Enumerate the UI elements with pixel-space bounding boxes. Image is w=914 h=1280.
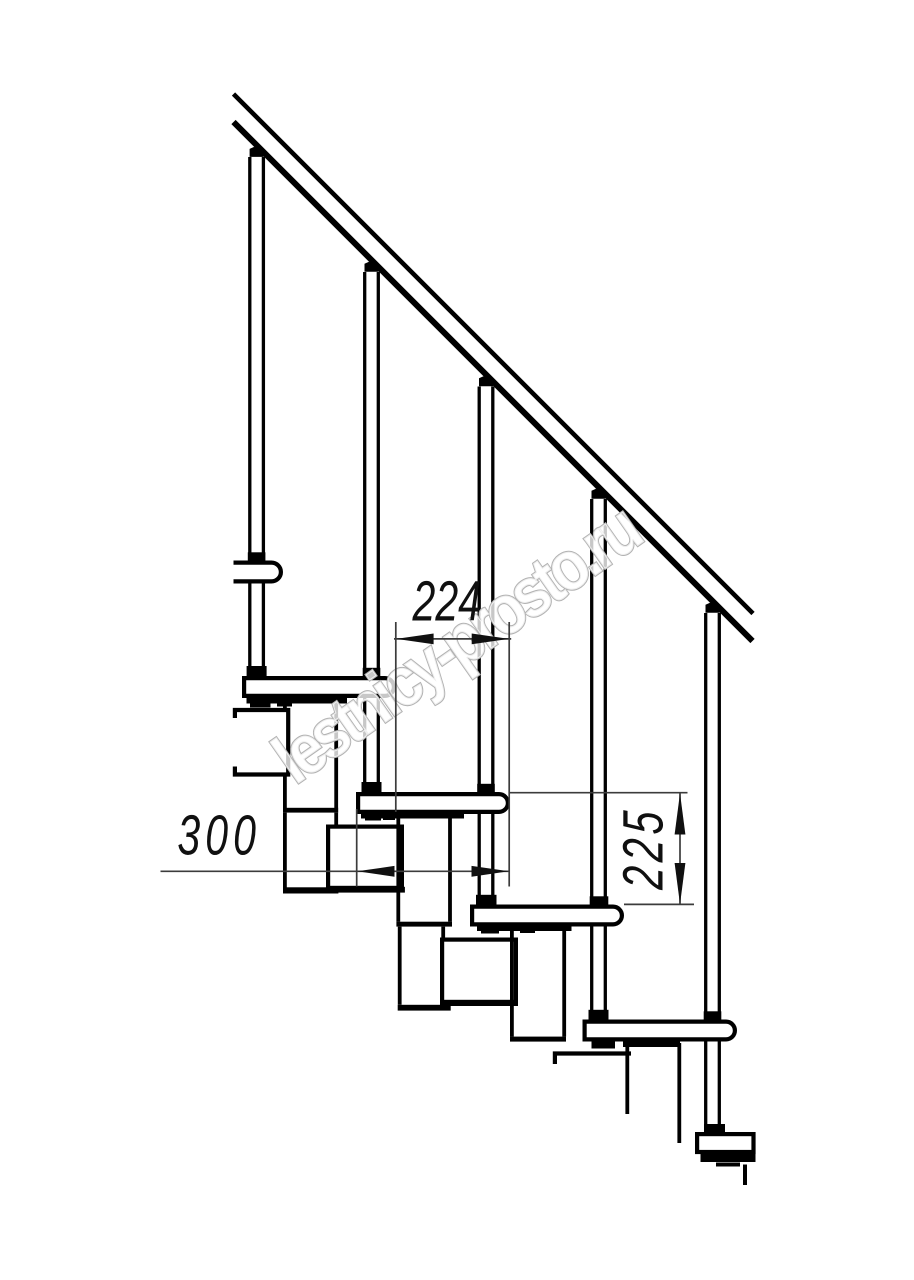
svg-text:300: 300 <box>177 803 261 867</box>
svg-text:224: 224 <box>412 569 481 633</box>
svg-text:225: 225 <box>611 805 675 892</box>
